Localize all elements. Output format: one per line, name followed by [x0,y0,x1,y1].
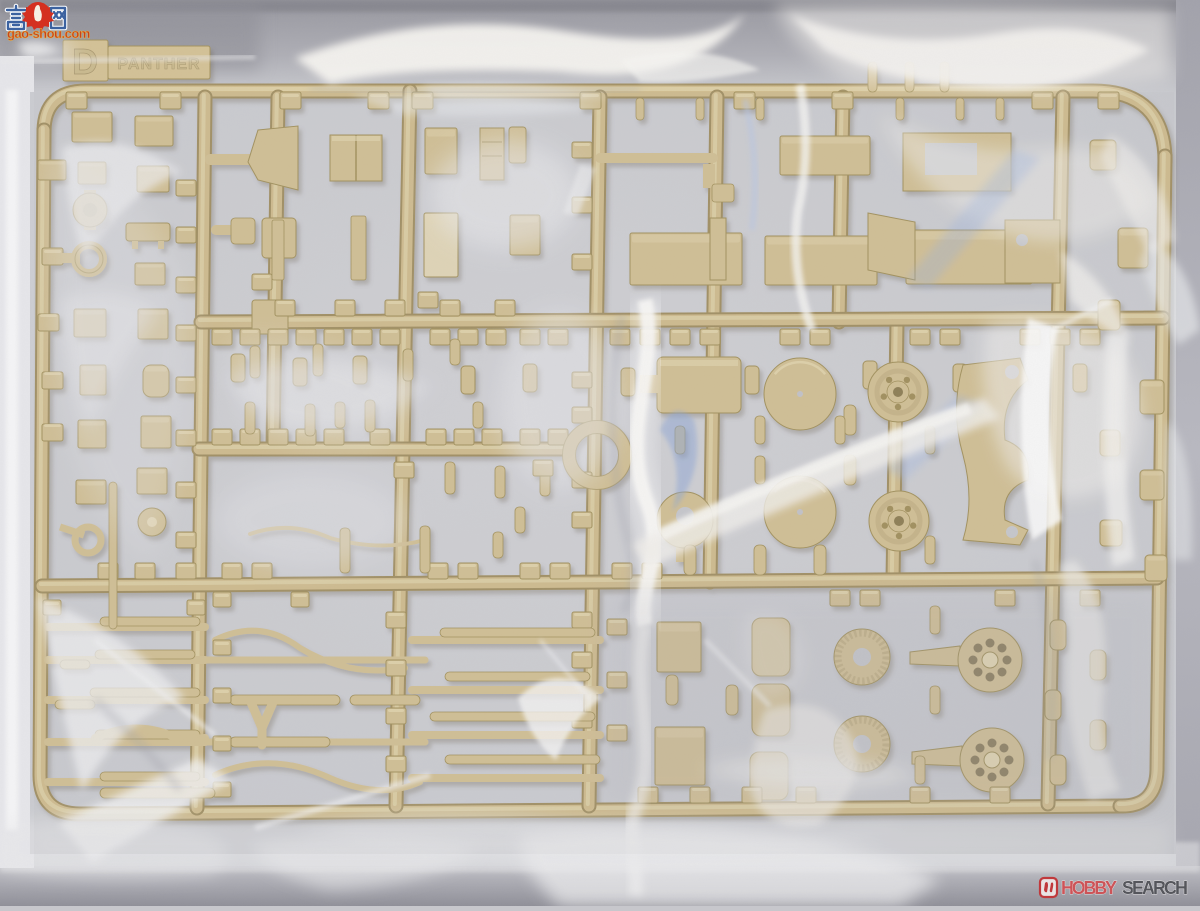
svg-text:HOBBY: HOBBY [1061,878,1118,898]
svg-text:gao-shou.com: gao-shou.com [7,26,90,41]
svg-text:SEARCH: SEARCH [1122,878,1189,898]
